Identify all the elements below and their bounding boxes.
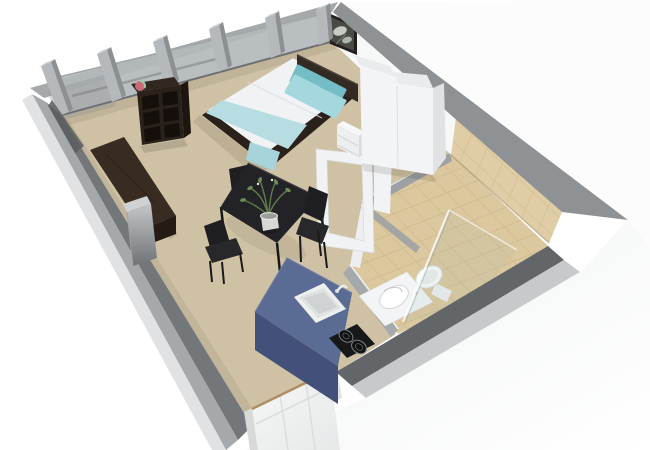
floor-plan-render xyxy=(0,0,650,450)
wall-pillar xyxy=(316,3,333,45)
floor-plan-svg xyxy=(0,0,650,450)
plant-pot-rim xyxy=(261,213,278,220)
